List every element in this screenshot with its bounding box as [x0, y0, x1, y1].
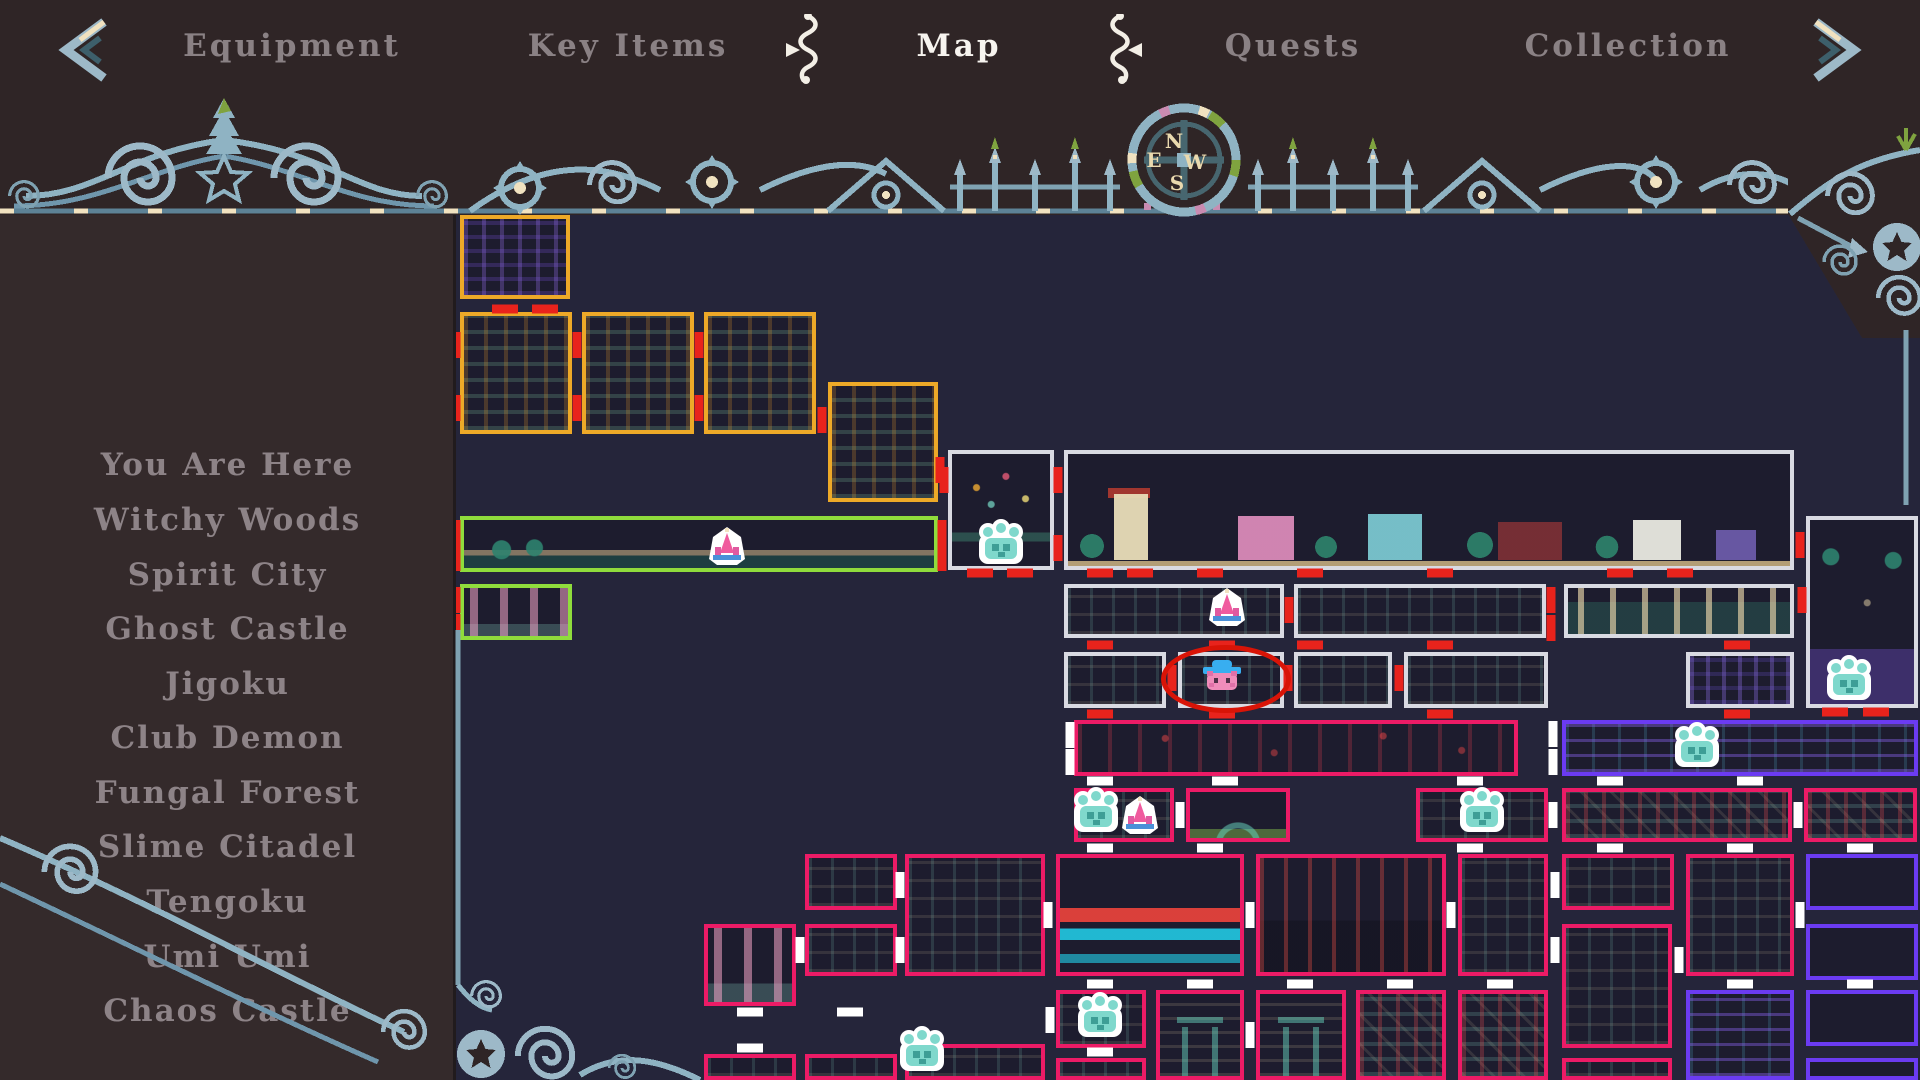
room-connector	[1549, 721, 1558, 747]
sidebar-item-chaos-castle[interactable]: Chaos Castle	[0, 993, 455, 1029]
sidebar-item-witchy-woods[interactable]: Witchy Woods	[0, 502, 455, 538]
save-point-paw-icon	[894, 1025, 950, 1075]
room-connector	[1597, 844, 1623, 853]
room-connector	[896, 937, 905, 963]
room-connector	[1054, 535, 1063, 561]
map-room	[805, 854, 897, 910]
room-connector	[1549, 802, 1558, 828]
room-connector	[1447, 902, 1456, 928]
paw-badge	[1821, 654, 1877, 708]
room-connector	[1054, 467, 1063, 493]
room-connector	[1667, 569, 1693, 578]
room-connector	[1724, 641, 1750, 650]
room-connector	[1847, 844, 1873, 853]
room-connector	[1847, 980, 1873, 989]
map-room	[1562, 788, 1792, 842]
paw-badge	[1454, 786, 1510, 840]
room-connector	[1547, 615, 1556, 641]
room-connector	[1737, 777, 1763, 786]
room-connector	[1796, 902, 1805, 928]
landmark-icon	[1116, 794, 1164, 838]
room-connector	[1427, 569, 1453, 578]
sidebar-item-tengoku[interactable]: Tengoku	[0, 884, 455, 920]
room-connector	[1727, 844, 1753, 853]
room-connector	[1212, 777, 1238, 786]
room-connector	[818, 407, 827, 433]
room-connector	[1044, 902, 1053, 928]
room-connector	[737, 1044, 763, 1053]
room-connector	[1727, 980, 1753, 989]
map-room	[460, 312, 572, 434]
room-connector	[1246, 902, 1255, 928]
room-connector	[1087, 980, 1113, 989]
sidebar-item-you-are-here[interactable]: You Are Here	[0, 447, 455, 483]
room-connector	[938, 520, 947, 546]
room-connector	[737, 1008, 763, 1017]
room-connector	[1087, 569, 1113, 578]
save-point-paw-icon	[1454, 786, 1510, 836]
map-room	[1404, 652, 1548, 708]
room-connector	[837, 1008, 863, 1017]
room-connector	[1675, 947, 1684, 973]
map-room	[805, 1054, 897, 1080]
room-connector	[1427, 710, 1453, 719]
room-connector	[1551, 872, 1560, 898]
map-room	[1256, 854, 1446, 976]
sidebar-item-umi-umi[interactable]: Umi Umi	[0, 939, 455, 975]
tab-key-items[interactable]: Key Items	[528, 28, 729, 64]
room-connector	[1246, 1022, 1255, 1048]
sidebar-item-ghost-castle[interactable]: Ghost Castle	[0, 611, 455, 647]
map-room	[1562, 924, 1672, 1048]
map-screen: You Are Here Witchy Woods Spirit City Gh…	[0, 0, 1920, 1080]
room-connector	[1187, 980, 1213, 989]
ornamental-border-band	[0, 88, 1920, 215]
map-room	[1294, 584, 1546, 638]
room-connector	[1087, 641, 1113, 650]
room-connector	[695, 395, 704, 421]
tab-equipment[interactable]: Equipment	[183, 28, 401, 64]
tab-quests[interactable]: Quests	[1225, 28, 1362, 64]
map-room	[1458, 854, 1548, 976]
current-location-circle	[1161, 645, 1291, 713]
map-room	[704, 924, 796, 1006]
map-room	[1806, 990, 1918, 1046]
save-point-paw-icon	[973, 518, 1029, 568]
paw-badge	[973, 518, 1029, 572]
paw-badge	[894, 1025, 950, 1079]
map-room	[704, 312, 816, 434]
room-connector	[1297, 641, 1323, 650]
next-page-arrow-icon[interactable]	[1800, 14, 1870, 86]
room-connector	[1798, 587, 1807, 613]
map-room	[460, 215, 570, 299]
room-connector	[938, 545, 947, 571]
room-connector	[1597, 777, 1623, 786]
map-room	[1064, 652, 1166, 708]
landmark-icon	[1203, 586, 1251, 630]
sidebar-item-spirit-city[interactable]: Spirit City	[0, 557, 455, 593]
map-room	[1562, 720, 1918, 776]
room-connector	[492, 305, 518, 314]
room-connector	[1822, 708, 1848, 717]
room-connector	[573, 395, 582, 421]
room-connector	[1176, 802, 1185, 828]
room-connector	[532, 305, 558, 314]
tab-map[interactable]: Map	[916, 28, 1001, 64]
save-point-paw-icon	[1072, 991, 1128, 1041]
room-connector	[1387, 980, 1413, 989]
room-connector	[1794, 802, 1803, 828]
room-connector	[1427, 641, 1453, 650]
room-connector	[1487, 980, 1513, 989]
tab-collection[interactable]: Collection	[1525, 28, 1732, 64]
room-connector	[1607, 569, 1633, 578]
map-room	[1806, 854, 1918, 910]
room-connector	[1395, 665, 1404, 691]
room-connector	[1457, 844, 1483, 853]
map-room	[1686, 854, 1794, 976]
room-connector	[1863, 708, 1889, 717]
room-connector	[1087, 844, 1113, 853]
room-connector	[1197, 569, 1223, 578]
sidebar-item-jigoku[interactable]: Jigoku	[0, 666, 455, 702]
map-room	[1458, 990, 1548, 1080]
room-connector	[1087, 1048, 1113, 1057]
room-connector	[1796, 532, 1805, 558]
map-room	[1056, 1058, 1146, 1080]
map-room	[1806, 924, 1918, 980]
area-list-panel: You Are Here Witchy Woods Spirit City Gh…	[0, 215, 455, 1080]
landmark-badge	[1116, 794, 1164, 842]
sidebar-item-slime-citadel[interactable]: Slime Citadel	[0, 829, 455, 865]
save-point-paw-icon	[1821, 654, 1877, 704]
map-room	[1356, 990, 1446, 1080]
landmark-badge	[1203, 586, 1251, 634]
map-room	[460, 584, 572, 640]
map-room	[1056, 854, 1244, 976]
room-connector	[940, 467, 949, 493]
landmark-badge	[703, 525, 751, 573]
map-room	[1804, 788, 1917, 842]
room-connector	[1457, 777, 1483, 786]
map-room	[1806, 1058, 1918, 1080]
room-connector	[695, 332, 704, 358]
map-room	[460, 516, 938, 572]
room-connector	[1724, 710, 1750, 719]
tab-divider-ornament-right	[1100, 14, 1146, 86]
map-room	[1256, 990, 1346, 1080]
panel-divider	[453, 215, 456, 1080]
room-connector	[1127, 569, 1153, 578]
room-connector	[1046, 1007, 1055, 1033]
save-point-paw-icon	[1669, 721, 1725, 771]
map-room	[1064, 450, 1794, 570]
room-connector	[1066, 722, 1075, 748]
map-room	[1686, 990, 1794, 1080]
landmark-icon	[703, 525, 751, 569]
map-room	[1562, 1058, 1672, 1080]
map-room	[1156, 990, 1244, 1080]
tab-divider-ornament-left	[782, 14, 828, 86]
room-connector	[896, 872, 905, 898]
map-room	[1686, 652, 1794, 708]
map-room	[828, 382, 938, 502]
map-room	[1294, 652, 1392, 708]
room-connector	[1197, 844, 1223, 853]
room-connector	[1066, 749, 1075, 775]
menu-tab-bar: Equipment Key Items Map Quests Collectio…	[0, 0, 1920, 88]
room-connector	[1285, 597, 1294, 623]
room-connector	[796, 937, 805, 963]
paw-badge	[1669, 721, 1725, 775]
map-room	[805, 924, 897, 976]
room-connector	[1551, 937, 1560, 963]
map-room	[1186, 788, 1290, 842]
room-connector	[1087, 710, 1113, 719]
room-connector	[1287, 980, 1313, 989]
map-room	[1064, 584, 1284, 638]
sidebar-item-club-demon[interactable]: Club Demon	[0, 720, 455, 756]
room-connector	[1297, 569, 1323, 578]
map-room	[905, 854, 1045, 976]
paw-badge	[1072, 991, 1128, 1045]
prev-page-arrow-icon[interactable]	[50, 14, 120, 86]
map-room	[1074, 720, 1518, 776]
room-connector	[573, 332, 582, 358]
map-room	[704, 1054, 796, 1080]
sidebar-item-fungal-forest[interactable]: Fungal Forest	[0, 775, 455, 811]
map-room	[1564, 584, 1794, 638]
room-connector	[1547, 587, 1556, 613]
room-connector	[1087, 777, 1113, 786]
room-connector	[1549, 749, 1558, 775]
map-room	[582, 312, 694, 434]
map-room	[1562, 854, 1674, 910]
